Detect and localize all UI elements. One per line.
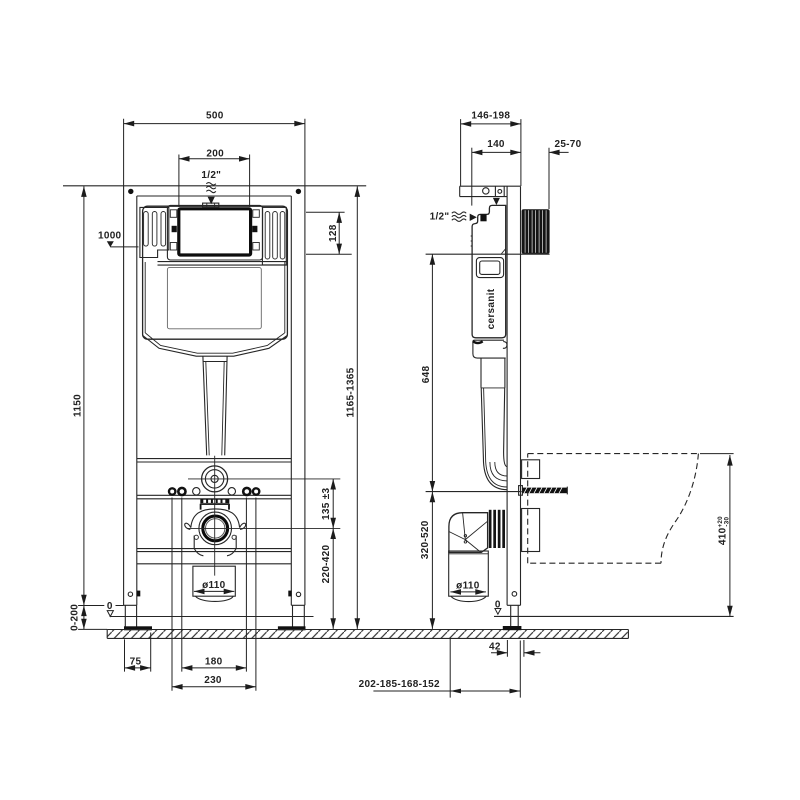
svg-text:1/2": 1/2" <box>430 211 450 222</box>
svg-text:220-420: 220-420 <box>321 544 332 583</box>
svg-text:146-198: 146-198 <box>471 111 510 122</box>
svg-text:230: 230 <box>204 675 222 686</box>
svg-text:135 ±3: 135 ±3 <box>321 488 332 520</box>
svg-text:1000: 1000 <box>98 231 122 242</box>
svg-text:648: 648 <box>421 365 432 383</box>
svg-text:180: 180 <box>205 656 223 667</box>
svg-text:410+20-30: 410+20-30 <box>717 516 730 545</box>
svg-text:320-520: 320-520 <box>420 520 431 559</box>
svg-text:202-185-168-152: 202-185-168-152 <box>359 679 440 690</box>
svg-text:75: 75 <box>130 656 142 667</box>
svg-text:200: 200 <box>206 149 224 160</box>
svg-text:25-70: 25-70 <box>554 139 581 150</box>
svg-text:ø110: ø110 <box>202 580 226 591</box>
svg-text:1/2": 1/2" <box>201 170 221 181</box>
svg-text:cersanit: cersanit <box>486 288 497 329</box>
svg-text:42: 42 <box>489 642 501 653</box>
svg-text:1150: 1150 <box>72 394 83 417</box>
svg-text:0-200: 0-200 <box>70 604 81 631</box>
svg-text:140: 140 <box>487 139 505 150</box>
svg-text:1165-1365: 1165-1365 <box>346 367 357 417</box>
svg-text:ø110: ø110 <box>456 581 480 592</box>
svg-text:500: 500 <box>206 110 224 121</box>
svg-text:128: 128 <box>328 224 339 242</box>
